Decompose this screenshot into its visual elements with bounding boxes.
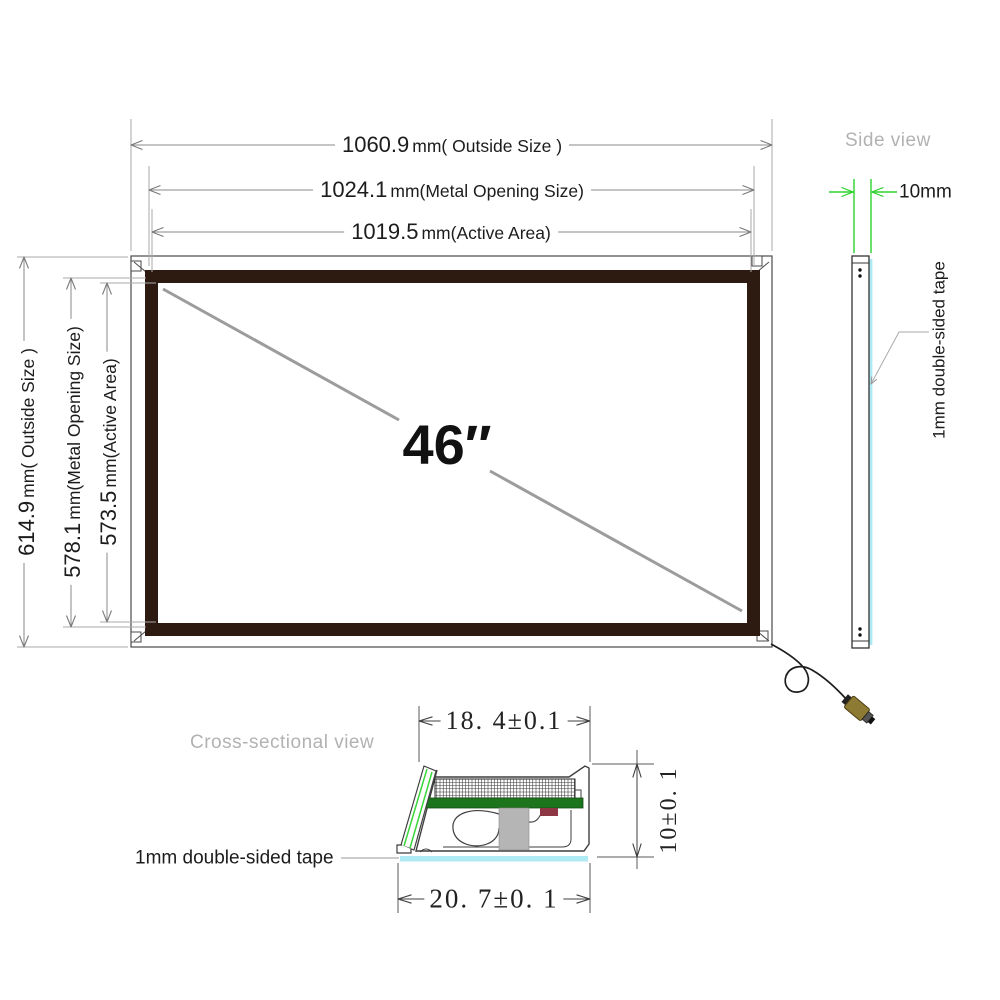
side-tape-leader-line xyxy=(871,332,929,384)
cs-top-width-label: 18. 4±0.1 xyxy=(441,708,568,734)
cs-pcb-bar xyxy=(424,798,583,808)
diagonal-size-label: 46″ xyxy=(402,417,491,473)
dim-outside-width-unit: mm( Outside Size ) xyxy=(412,136,562,156)
cross-section-title: Cross-sectional view xyxy=(190,733,374,752)
dim-active-area-width-value: 1019.5 xyxy=(351,219,418,244)
dim-active-area-width-unit: mm(Active Area) xyxy=(421,223,550,243)
dim-metal-opening-height-value: 578.1 xyxy=(60,523,85,578)
cs-red-component xyxy=(540,808,558,816)
side-view xyxy=(829,179,929,648)
dim-active-area-height-unit: mm(Active Area) xyxy=(100,358,120,487)
dim-active-area-height: 573.5mm(Active Area) xyxy=(97,351,121,552)
thickness-dimension-green xyxy=(829,179,897,253)
cross-section-view xyxy=(341,706,654,913)
side-profile-bar xyxy=(852,256,869,648)
usb-connector xyxy=(840,692,878,727)
dim-outside-height-unit: mm( Outside Size ) xyxy=(18,348,38,498)
dim-outside-height-value: 614.9 xyxy=(14,501,39,556)
dim-active-area-width: 1019.5mm(Active Area) xyxy=(344,220,558,244)
cs-height-label: 10±0. 1 xyxy=(657,761,681,858)
cs-tape-label: 1mm double-sided tape xyxy=(135,849,334,868)
cs-hatched-filter-block xyxy=(435,779,575,798)
dim-metal-opening-width-unit: mm(Metal Opening Size) xyxy=(390,181,584,201)
dim-outside-height: 614.9mm( Outside Size ) xyxy=(15,341,39,563)
dim-active-area-height-value: 573.5 xyxy=(96,491,121,546)
side-view-title: Side view xyxy=(845,131,931,150)
side-thickness-label: 10mm xyxy=(899,183,952,202)
dim-metal-opening-height: 578.1mm(Metal Opening Size) xyxy=(61,319,85,585)
usb-cable xyxy=(771,644,847,700)
dim-outside-width: 1060.9mm( Outside Size ) xyxy=(335,133,569,157)
cs-gray-block xyxy=(499,808,529,850)
dim-outside-width-value: 1060.9 xyxy=(342,132,409,157)
cs-bottom-width-label: 20. 7±0. 1 xyxy=(424,886,563,913)
dim-metal-opening-width: 1024.1mm(Metal Opening Size) xyxy=(313,178,591,202)
dim-metal-opening-width-value: 1024.1 xyxy=(320,177,387,202)
side-tape-label: 1mm double-sided tape xyxy=(931,261,948,439)
dim-metal-opening-height-unit: mm(Metal Opening Size) xyxy=(64,326,84,520)
touch-panel-technical-drawing: 1060.9mm( Outside Size ) 1024.1mm(Metal … xyxy=(0,0,1000,1000)
cs-height-dim xyxy=(592,750,654,869)
cs-tape-strip xyxy=(400,856,588,862)
